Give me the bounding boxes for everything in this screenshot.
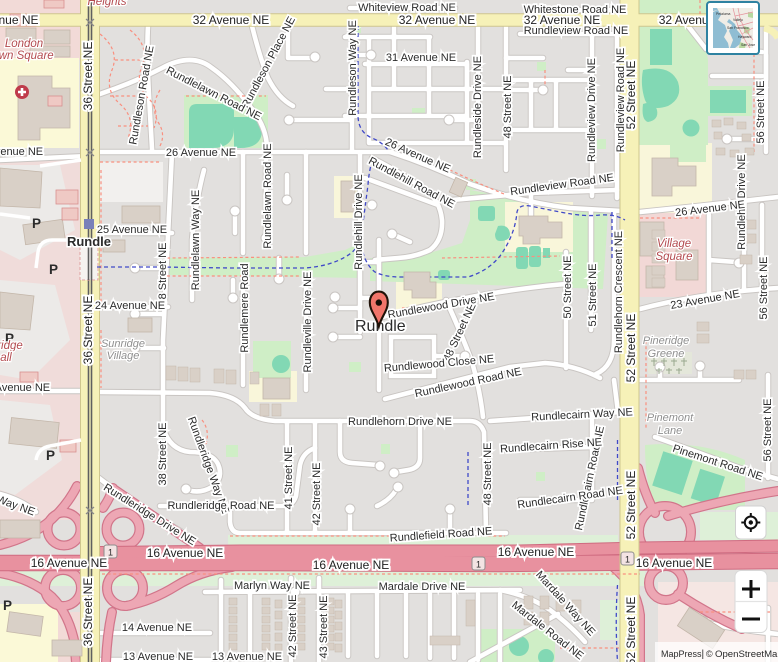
svg-text:36 Street NE: 36 Street NE	[81, 578, 95, 647]
svg-text:Rundle: Rundle	[67, 234, 111, 249]
svg-text:38 Street NE: 38 Street NE	[157, 243, 169, 306]
svg-text:Vallejo: Vallejo	[733, 18, 743, 22]
svg-text:Petaluma: Petaluma	[716, 12, 730, 16]
svg-text:Pinemont: Pinemont	[647, 412, 694, 424]
svg-text:Rundleridge Road NE: Rundleridge Road NE	[167, 500, 274, 512]
svg-text:36 Street NE: 36 Street NE	[81, 42, 95, 111]
svg-text:16 Avenue NE: 16 Avenue NE	[498, 545, 575, 559]
svg-text:42 Street NE: 42 Street NE	[287, 595, 299, 658]
svg-text:32 Avenue NE: 32 Avenue NE	[399, 13, 476, 27]
svg-text:43 Street NE: 43 Street NE	[318, 596, 330, 659]
svg-text:Rundlehorn Drive NE: Rundlehorn Drive NE	[348, 416, 452, 428]
svg-text:Village: Village	[657, 238, 691, 250]
svg-text:16 Avenue NE: 16 Avenue NE	[31, 556, 108, 570]
svg-text:Rundleview Road NE: Rundleview Road NE	[524, 25, 629, 37]
svg-text:P: P	[32, 216, 41, 231]
svg-text:Rundleview Road NE: Rundleview Road NE	[615, 48, 627, 153]
svg-text:48 Street NE: 48 Street NE	[502, 76, 514, 139]
svg-text:Whiteview Road NE: Whiteview Road NE	[358, 2, 456, 14]
svg-text:Rundlemere Road: Rundlemere Road	[239, 263, 251, 352]
svg-text:Town Square: Town Square	[0, 50, 54, 62]
svg-text:16 Avenue NE: 16 Avenue NE	[147, 546, 224, 560]
svg-text:1: 1	[476, 560, 481, 570]
svg-text:42 Street NE: 42 Street NE	[311, 463, 323, 526]
svg-text:Mardale Drive NE: Mardale Drive NE	[379, 581, 466, 593]
svg-text:|: |	[702, 649, 705, 660]
svg-text:P: P	[49, 262, 58, 277]
svg-text:56 Street NE: 56 Street NE	[755, 81, 767, 144]
svg-text:©: ©	[706, 649, 713, 659]
svg-text:Rundleson Way NE: Rundleson Way NE	[347, 20, 359, 116]
svg-text:Pineridge: Pineridge	[643, 335, 689, 347]
svg-text:16 Avenue NE: 16 Avenue NE	[313, 558, 390, 572]
svg-text:Rundlelawn Road NE: Rundlelawn Road NE	[262, 143, 274, 248]
svg-text:San Francisco: San Francisco	[727, 26, 749, 30]
svg-text:50 Street NE: 50 Street NE	[562, 256, 574, 319]
svg-text:Rundleview Drive NE: Rundleview Drive NE	[586, 58, 598, 162]
svg-text:Rundlehorn Crescent NE: Rundlehorn Crescent NE	[613, 231, 625, 353]
svg-text:26 Avenue NE: 26 Avenue NE	[0, 146, 43, 158]
svg-text:31 Avenue NE: 31 Avenue NE	[386, 52, 456, 64]
svg-text:ridge: ridge	[0, 340, 23, 352]
svg-text:41 Street NE: 41 Street NE	[283, 447, 295, 510]
svg-text:OpenStreetMap: OpenStreetMap	[715, 649, 778, 660]
svg-text:32 Avenue NE: 32 Avenue NE	[193, 13, 270, 27]
svg-text:52 Street NE: 52 Street NE	[624, 597, 638, 662]
svg-text:38 Street NE: 38 Street NE	[157, 423, 169, 486]
svg-text:14 Avenue NE: 14 Avenue NE	[122, 622, 192, 634]
svg-text:Lane: Lane	[658, 425, 682, 437]
svg-text:13 Avenue NE: 13 Avenue NE	[212, 651, 282, 662]
svg-text:London: London	[5, 38, 43, 50]
svg-text:56 Street NE: 56 Street NE	[758, 257, 770, 320]
svg-text:16 Avenue NE: 16 Avenue NE	[636, 556, 713, 570]
svg-text:all: all	[0, 352, 12, 364]
svg-text:P: P	[3, 598, 12, 613]
svg-text:San Jose: San Jose	[741, 43, 755, 47]
svg-text:24 Avenue NE: 24 Avenue NE	[95, 300, 165, 312]
svg-text:Village: Village	[107, 350, 140, 362]
svg-text:Rundleville Drive NE: Rundleville Drive NE	[302, 272, 314, 373]
svg-text:36 Street NE: 36 Street NE	[81, 296, 95, 365]
svg-text:Whitestone Road NE: Whitestone Road NE	[524, 4, 627, 16]
svg-text:48 Street NE: 48 Street NE	[482, 443, 494, 506]
svg-text:Square: Square	[655, 251, 692, 263]
svg-text:52 Street NE: 52 Street NE	[624, 314, 638, 383]
svg-text:52 Street NE: 52 Street NE	[624, 471, 638, 540]
svg-text:MapPress: MapPress	[661, 649, 702, 659]
svg-text:32 Avenue NE: 32 Avenue NE	[0, 13, 39, 27]
svg-text:Sunridge: Sunridge	[101, 338, 145, 350]
svg-text:56 Street NE: 56 Street NE	[762, 399, 774, 462]
svg-text:Rundlehill Drive NE: Rundlehill Drive NE	[353, 174, 365, 269]
svg-text:Greene: Greene	[648, 348, 685, 360]
svg-text:Marlyn Way NE: Marlyn Way NE	[234, 580, 310, 592]
svg-text:P: P	[46, 448, 55, 463]
svg-text:Rundlelawn Way NE: Rundlelawn Way NE	[190, 190, 202, 290]
svg-text:1: 1	[108, 548, 113, 558]
svg-text:26 Avenue NE: 26 Avenue NE	[166, 147, 236, 159]
svg-text:Heights: Heights	[88, 0, 127, 8]
svg-text:1: 1	[625, 555, 630, 565]
svg-text:13 Avenue NE: 13 Avenue NE	[123, 651, 193, 662]
svg-text:Hayward: Hayward	[738, 35, 751, 39]
svg-text:22 Avenue NE: 22 Avenue NE	[0, 382, 50, 394]
svg-text:Rundleside Drive NE: Rundleside Drive NE	[472, 56, 484, 158]
svg-text:51 Street NE: 51 Street NE	[587, 264, 599, 327]
